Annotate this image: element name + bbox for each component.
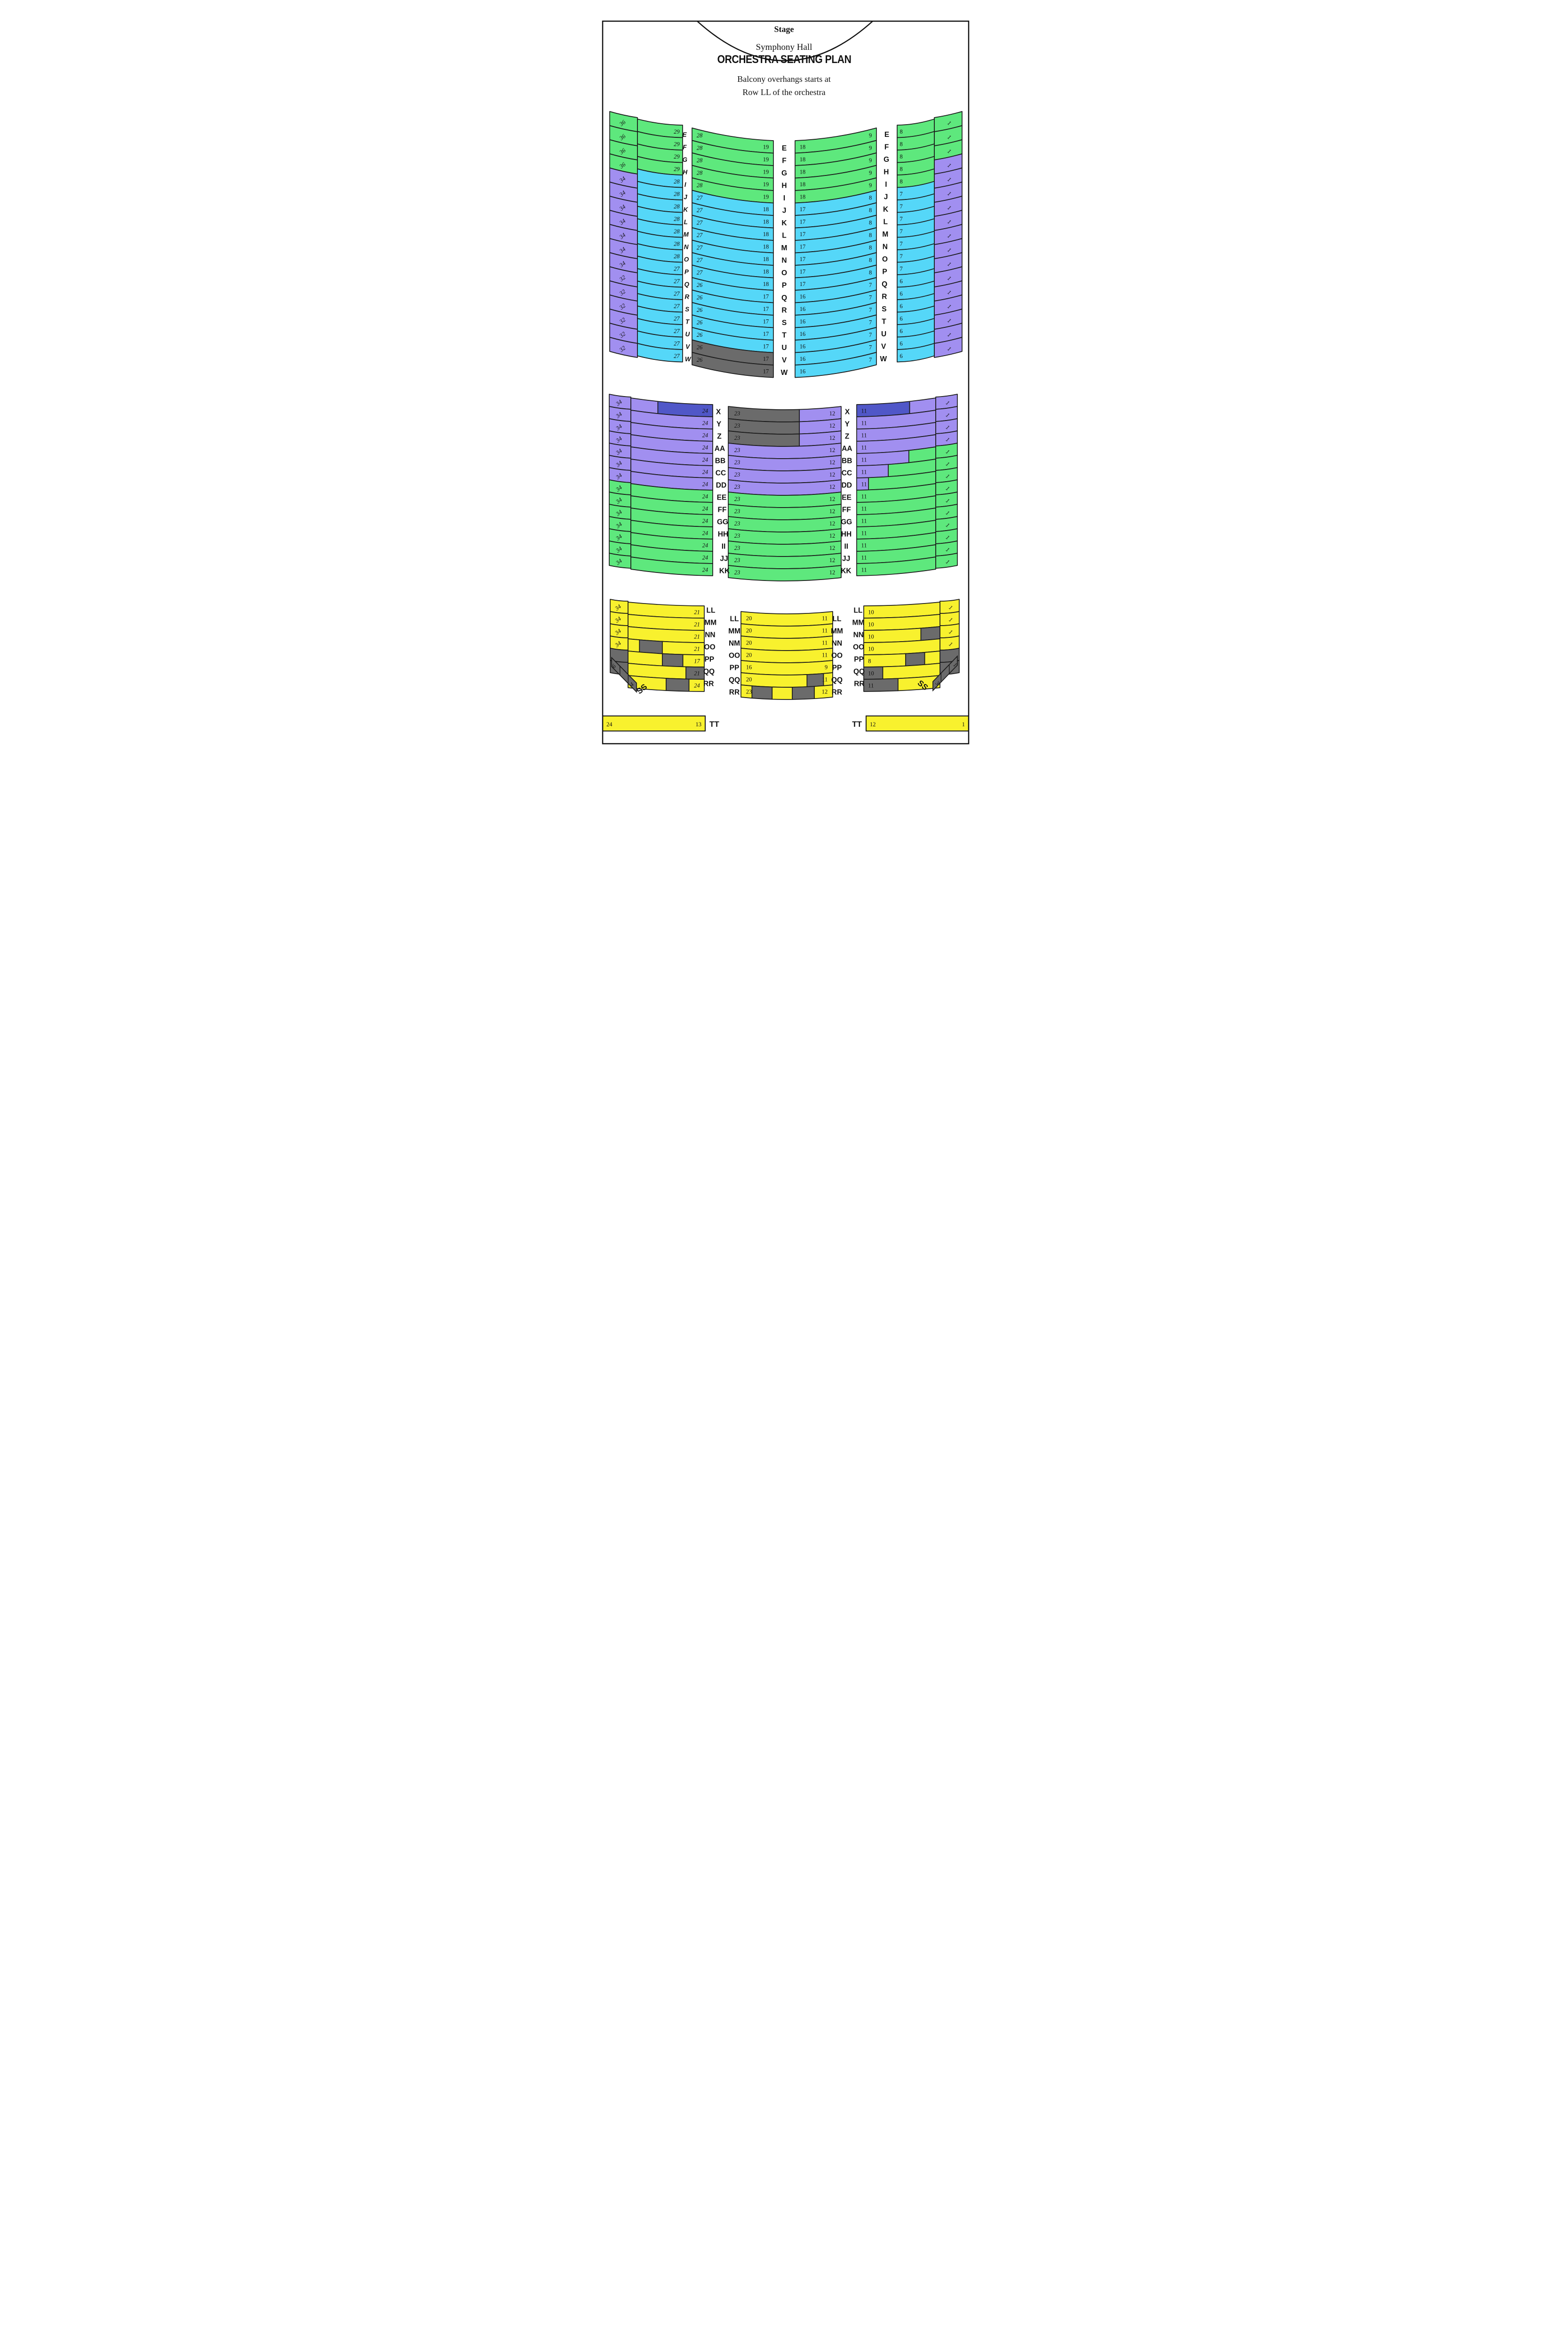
b2-wingR: 11111111111111	[936, 394, 957, 568]
row-letter: K	[883, 206, 888, 214]
row-letter: O	[684, 256, 689, 263]
row-letter: OO	[728, 652, 740, 660]
row-letter: FF	[842, 506, 851, 514]
row-letter: JJ	[720, 555, 728, 563]
seat-number-left: 27	[696, 220, 702, 226]
row-letter: S	[882, 305, 886, 313]
row-letter: G	[781, 169, 787, 177]
seat-number-left: 27	[696, 245, 702, 251]
seat-number-right: 27	[674, 303, 680, 310]
seat-number-left: 10	[868, 621, 874, 628]
seat-number-right: 18	[763, 219, 769, 225]
row-letter: MM	[728, 628, 740, 636]
row-letter: R	[781, 306, 787, 314]
row-letter: R	[882, 293, 887, 301]
row-letter: K	[683, 206, 688, 213]
seat-number-left: 11	[861, 457, 867, 463]
seat-number-left: 10	[868, 646, 874, 652]
row-letter: W	[685, 356, 691, 363]
seat-number-right: 8	[868, 232, 871, 238]
row-letter: J	[883, 193, 888, 201]
row-letter: V	[685, 343, 690, 350]
seat-number-left: 23	[734, 435, 740, 441]
seat-number-left: 11	[861, 567, 867, 573]
seat-number-right: 24	[702, 457, 708, 463]
row-letter: R	[685, 293, 689, 300]
seat-number-right: 7	[868, 332, 871, 338]
seat-number-left: 28	[696, 182, 702, 189]
seat-number-right: 18	[763, 281, 769, 287]
seat-number-right: 12	[829, 557, 835, 564]
seat-number-left: 23	[734, 569, 740, 576]
row-letter: E	[884, 131, 889, 139]
seat-number-right: 27	[674, 290, 680, 297]
row-letter: OO	[853, 644, 864, 652]
balcony-note-line2: Row LL of the orchestra	[549, 87, 1019, 97]
seat-number-left: 11	[861, 493, 867, 500]
seat-number-right: 9	[824, 664, 827, 671]
row-letter: W	[880, 355, 887, 363]
seat-number-left: 20	[746, 652, 752, 659]
row-letter: N	[781, 256, 787, 264]
seat-number-left: 11	[861, 481, 867, 488]
seat-number-right: 11	[822, 615, 828, 622]
seat-number-left: 17	[799, 244, 805, 250]
seat-number-left: 23	[734, 508, 740, 515]
seat-number-right: 12	[829, 545, 835, 551]
seat-number-left: 7	[899, 191, 902, 197]
seat-number-left: 6	[899, 278, 902, 285]
seat-number-right: 29	[674, 166, 680, 172]
b1-secRR: 8888877777776666666	[897, 119, 934, 362]
seat-number-left: 28	[696, 157, 702, 164]
hall-name: Symphony Hall	[549, 42, 1019, 53]
b1-secL: 29292929282828282828282727272727272727	[637, 119, 683, 362]
seat-number-right: 17	[763, 368, 769, 375]
seat-number-right: 24	[702, 420, 708, 427]
seat-row-band	[741, 636, 833, 651]
page-title: ORCHESTRA SEATING PLAN	[577, 53, 991, 66]
row-letter: L	[883, 218, 887, 226]
row-letter: F	[782, 157, 786, 165]
tt-left: 2413TT	[603, 716, 719, 731]
row-letter: KK	[841, 567, 852, 575]
tt-row-label: TT	[709, 720, 719, 729]
seat-number-left: 8	[899, 166, 902, 172]
seat-number-right: 24	[694, 683, 700, 689]
seat-number-right: 29	[674, 141, 680, 147]
seat-number-left: 18	[799, 181, 805, 188]
row-letter: P	[781, 281, 786, 289]
seat-number-right: 27	[674, 265, 680, 272]
seat-number-right: 12	[829, 508, 835, 515]
seat-number-left: 11	[861, 432, 867, 439]
seat-number-left: 11	[861, 420, 867, 427]
seat-number-left: 27	[696, 232, 702, 238]
seat-number-right: 12	[829, 484, 835, 490]
row-letter: PP	[729, 664, 739, 672]
row-letter: LL	[730, 615, 739, 623]
seat-number-left: 16	[799, 368, 805, 375]
row-letter: EE	[842, 494, 852, 502]
seat-number-right: 7	[868, 319, 871, 326]
b2-wingL: 3434343434343434343434343434	[609, 394, 631, 568]
seat-number-left: 11	[861, 506, 867, 512]
seat-number-left: 23	[734, 557, 740, 564]
row-letter: H	[883, 168, 889, 176]
row-letter: RR	[729, 689, 739, 697]
row-letter: S	[781, 319, 786, 327]
seat-number-right: 9	[868, 145, 871, 151]
stage-label: Stage	[549, 24, 1019, 34]
row-letter: T	[685, 318, 690, 325]
seat-number-right: 17	[763, 331, 769, 337]
seat-number-left: 23	[734, 484, 740, 490]
seat-number-left: 7	[899, 215, 902, 222]
seat-number-right: 27	[674, 353, 680, 359]
row-tt-bar	[603, 716, 705, 731]
row-letter: QQ	[728, 676, 740, 684]
seat-number-right: 19	[763, 181, 769, 188]
seat-number-right: 18	[763, 256, 769, 262]
row-letter: X	[844, 408, 850, 416]
row-letter: U	[781, 344, 787, 352]
seat-number-left: 20	[746, 640, 752, 646]
seat-number-right: 12	[829, 435, 835, 441]
seat-row-band	[741, 624, 833, 638]
seat-number-right: 19	[763, 144, 769, 151]
row-letter: J	[684, 193, 687, 200]
seat-number-left: 26	[696, 294, 702, 301]
row-letter: QQ	[703, 668, 714, 676]
row-letter: O	[882, 255, 887, 263]
row-letter: O	[781, 269, 787, 277]
seat-number-right: 24	[702, 481, 708, 488]
seat-number-left: 23	[734, 422, 740, 429]
seat-number-right: 21	[694, 670, 700, 677]
seat-number-left: 16	[799, 294, 805, 300]
row-letter: RR	[854, 680, 864, 688]
seat-number-right: 28	[674, 253, 680, 260]
row-letter: I	[684, 181, 686, 188]
seat-number-left: 18	[799, 144, 805, 151]
seat-number-left: 8	[899, 178, 902, 185]
row-letter: BB	[715, 457, 725, 465]
seat-number-right: 29	[674, 153, 680, 160]
seat-number-left: 23	[734, 447, 740, 453]
b2-secC: 2312231223122312231223122312231223122312…	[728, 406, 841, 581]
seat-number-right: 7	[868, 357, 871, 363]
seat-number-right: 24	[702, 555, 708, 561]
row-letter: Y	[716, 421, 721, 429]
row-letter: NN	[705, 631, 715, 639]
seat-row-band	[741, 648, 833, 663]
seat-number-left: 7	[899, 228, 902, 235]
seat-number-left: 17	[799, 281, 805, 287]
seat-number-left: 12	[870, 721, 876, 728]
b3-secR: 1010101081011	[864, 602, 940, 691]
seat-number-left: 11	[861, 530, 867, 537]
row-letter: FF	[717, 506, 726, 514]
row-letter: AA	[714, 445, 724, 453]
seat-number-left: 26	[696, 344, 702, 351]
seat-number-left: 23	[734, 496, 740, 502]
seat-number-right: 27	[674, 278, 680, 285]
seat-number-left: 17	[799, 269, 805, 275]
b3-secL: 21212121172124	[628, 602, 704, 691]
tt-right: 121TT	[852, 716, 969, 731]
row-letter: EE	[716, 494, 726, 502]
row-letter: F	[884, 143, 888, 151]
seat-number-left: 16	[799, 306, 805, 312]
tt-row-label: TT	[852, 720, 862, 729]
row-letter: MM	[704, 619, 716, 627]
seat-number-left: 11	[861, 542, 867, 549]
seat-number-left: 6	[899, 315, 902, 322]
seat-number-right: 17	[763, 306, 769, 312]
row-letter: II	[721, 543, 725, 551]
seat-number-left: 7	[899, 265, 902, 272]
seat-number-left: 27	[696, 207, 702, 214]
row-letter: W	[780, 369, 788, 377]
seat-number-right: 21	[694, 621, 700, 628]
row-letter: NN	[831, 640, 842, 648]
seat-number-left: 8	[868, 658, 871, 665]
seat-number-left: 20	[746, 628, 752, 634]
row-letter: Q	[781, 294, 787, 302]
b2-aisle-left: XYZAABBCCDDEEFFGGHHIIJJKK	[714, 408, 730, 575]
b2-aisle-right: XYZAABBCCDDEEFFGGHHIIJJKK	[841, 408, 852, 575]
row-letter: V	[781, 356, 787, 364]
seat-number-right: 11	[822, 652, 828, 659]
seat-row-band	[924, 651, 939, 665]
balcony-note-line1: Balcony overhangs starts at	[549, 74, 1019, 84]
row-letter: I	[783, 194, 785, 202]
row-letter: Q	[684, 281, 689, 288]
row-letter: X	[716, 408, 721, 416]
row-letter: L	[684, 218, 687, 225]
seat-number-right: 24	[702, 542, 708, 549]
row-letter: HH	[841, 531, 851, 539]
row-letter: LL	[853, 607, 862, 615]
seat-number-left: 26	[696, 357, 702, 363]
seat-number-left: 23	[734, 545, 740, 551]
row-letter: G	[883, 156, 889, 164]
seat-number-right: 7	[868, 344, 871, 351]
seat-number-right: 28	[674, 191, 680, 197]
seat-number-left: 6	[899, 328, 902, 334]
seat-number-right: 7	[868, 282, 871, 288]
seat-number-right: 19	[763, 194, 769, 200]
seat-number-right: 8	[868, 270, 871, 276]
seat-number-left: 17	[799, 256, 805, 262]
seat-number-right: 21	[694, 609, 700, 616]
row-letter: NN	[853, 631, 863, 639]
seat-number-left: 18	[799, 194, 805, 200]
seat-number-right: 11	[822, 676, 828, 683]
seat-number-right: 18	[763, 206, 769, 213]
seat-number-left: 23	[734, 410, 740, 417]
seat-number-right: 24	[702, 506, 708, 512]
row-letter: K	[781, 219, 787, 227]
row-letter: H	[781, 182, 787, 190]
seat-number-left: 20	[746, 615, 752, 622]
seat-number-right: 18	[763, 269, 769, 275]
row-letter: LL	[832, 615, 841, 623]
seat-number-right: 27	[674, 340, 680, 347]
row-letter: NM	[728, 640, 740, 648]
row-letter: KK	[719, 567, 730, 575]
seat-number-left: 27	[696, 270, 702, 276]
row-letter: OO	[831, 652, 842, 660]
seat-number-right: 28	[674, 203, 680, 210]
seat-row-band	[639, 640, 662, 653]
row-letter: H	[683, 168, 687, 175]
row-letter: AA	[842, 445, 852, 453]
seat-number-right: 12	[829, 532, 835, 539]
seat-number-left: 10	[868, 609, 874, 616]
seat-number-right: 9	[868, 170, 871, 176]
seat-number-left: 16	[799, 318, 805, 325]
seating-chart-page: 3636363634343434343434323232323232111111…	[549, 0, 1019, 753]
row-letter: QQ	[853, 668, 864, 676]
row-letter: L	[782, 231, 786, 239]
seat-number-left: 23	[734, 471, 740, 478]
seat-number-right: 7	[868, 294, 871, 301]
seat-number-right: 8	[868, 220, 871, 226]
row-letter: I	[885, 181, 887, 189]
row-letter: U	[881, 330, 886, 338]
b1-secR: 1891891891891891781781781781781781781671…	[795, 128, 876, 378]
seat-number-left: 10	[868, 670, 874, 677]
seat-number-left: 8	[899, 141, 902, 147]
seat-number-right: 24	[702, 567, 708, 573]
seat-number-right: 13	[695, 721, 701, 728]
row-letter: P	[684, 268, 689, 275]
seat-number-left: 11	[861, 555, 867, 561]
seat-number-left: 11	[861, 518, 867, 524]
seat-number-right: 24	[702, 445, 708, 451]
seat-number-right: 28	[674, 228, 680, 235]
row-letter: T	[782, 331, 787, 339]
row-letter: F	[683, 143, 687, 151]
seat-number-right: 24	[702, 432, 708, 439]
seat-row-band	[666, 678, 689, 691]
row-letter: V	[881, 342, 886, 350]
seat-number-left: 23	[734, 520, 740, 527]
row-letter: N	[684, 243, 688, 250]
seat-number-right: 28	[674, 178, 680, 185]
seat-number-right: 1	[962, 721, 964, 728]
b3-aisle-outer-left: LLMMNNOOPPQQRR	[703, 607, 716, 688]
b1-aisle-right: EFGHIJKLMNOPQRSTUVW	[880, 131, 889, 363]
seat-number-right: 27	[674, 328, 680, 334]
seat-number-left: 26	[696, 307, 702, 313]
seat-number-left: 17	[799, 206, 805, 213]
row-letter: T	[882, 318, 886, 326]
seat-number-left: 28	[696, 145, 702, 151]
seat-number-left: 6	[899, 303, 902, 310]
seat-number-right: 24	[702, 518, 708, 524]
seat-number-right: 12	[829, 410, 835, 417]
row-letter: Z	[717, 433, 722, 441]
seat-number-left: 27	[696, 195, 702, 201]
seat-row-band	[921, 627, 940, 641]
seat-number-left: 11	[861, 408, 867, 414]
row-letter: E	[781, 144, 786, 152]
seat-number-left: 28	[696, 132, 702, 139]
b3-aisle-inner-left: LLMMNMOOPPQQRR	[728, 615, 740, 697]
seat-number-left: 6	[899, 340, 902, 347]
seat-number-left: 20	[746, 676, 752, 683]
b2-secL: 2424242424242424242424242424	[631, 398, 713, 576]
seat-number-right: 18	[763, 231, 769, 238]
seat-number-left: 16	[799, 356, 805, 362]
seat-number-right: 24	[702, 493, 708, 500]
row-letter: RR	[831, 689, 842, 697]
seat-number-left: 11	[861, 445, 867, 451]
seat-number-right: 17	[763, 343, 769, 350]
seat-number-right: 11	[822, 640, 828, 646]
seat-number-right: 21	[694, 634, 700, 640]
row-letter: OO	[704, 644, 715, 652]
seat-number-right: 24	[702, 469, 708, 476]
seat-number-left: 11	[868, 683, 874, 689]
seat-number-right: 12	[829, 422, 835, 429]
seat-number-left: 18	[799, 156, 805, 163]
seat-number-left: 11	[861, 469, 867, 476]
seat-number-right: 24	[702, 408, 708, 414]
seat-number-right: 21	[694, 646, 700, 652]
seat-number-right: 19	[763, 169, 769, 175]
seat-number-right: 12	[829, 459, 835, 466]
seat-row-band	[807, 674, 823, 687]
row-letter: PP	[704, 656, 714, 664]
seat-number-right: 17	[694, 658, 700, 665]
seat-row-band	[628, 639, 639, 652]
row-letter: Q	[882, 280, 887, 288]
b3-secC: 201120112011201116920112312	[741, 612, 833, 699]
seat-number-right: 9	[868, 132, 871, 139]
row-letter: LL	[706, 607, 715, 615]
seat-number-right: 12	[829, 471, 835, 478]
seat-number-left: 6	[899, 353, 902, 359]
row-letter: PP	[854, 656, 864, 664]
seat-number-right: 12	[829, 520, 835, 527]
seat-number-left: 26	[696, 282, 702, 288]
b3-aisle-outer-right: LLMMNNOOPPQQRR	[852, 607, 865, 688]
seat-number-right: 12	[829, 447, 835, 453]
seat-number-right: 28	[674, 215, 680, 222]
row-letter: II	[844, 543, 848, 551]
row-letter: CC	[715, 469, 725, 477]
b1-secC: 2819281928192819281927182718271827182718…	[692, 128, 773, 378]
row-letter: HH	[717, 531, 728, 539]
seat-number-left: 6	[899, 290, 902, 297]
row-letter: J	[782, 207, 786, 215]
b1-wingL: 3636363634343434343434323232323232	[610, 111, 637, 358]
row-letter: GG	[716, 518, 728, 526]
seat-number-right: 12	[821, 689, 828, 695]
seat-number-left: 7	[899, 253, 902, 260]
row-tt-bar	[866, 716, 969, 731]
seat-number-right: 17	[763, 318, 769, 325]
seat-number-left: 16	[799, 331, 805, 337]
row-letter: DD	[716, 482, 726, 490]
row-letter: QQ	[831, 676, 842, 684]
seat-number-right: 12	[829, 569, 835, 576]
seat-number-right: 29	[674, 128, 680, 135]
